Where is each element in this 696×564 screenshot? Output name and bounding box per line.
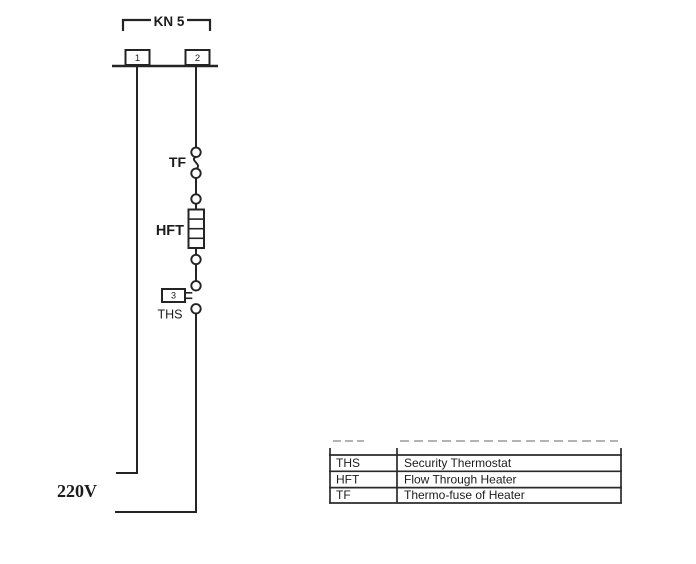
legend-table: THS Security Thermostat HFT Flow Through… [329,441,622,503]
wire-pin1-to-supply [116,66,137,473]
kn5-connector: KN 5 1 2 [112,14,218,66]
wiring-diagram: KN 5 1 2 TF [0,0,696,564]
hft-heater-symbol: HFT [156,194,204,264]
pin-1-label: 1 [135,53,140,64]
legend-description: Security Thermostat [404,456,512,470]
legend-row: THS Security Thermostat [336,456,512,470]
legend-description: Thermo-fuse of Heater [404,488,525,502]
ths-terminal-number: 3 [171,291,176,301]
legend-code: TF [336,488,351,502]
ths-terminal-bottom [191,304,200,313]
ths-thermostat-symbol: 3 THS [158,281,201,321]
legend-code: THS [336,456,360,470]
hft-label: HFT [156,223,184,239]
tf-terminal-top [191,148,200,157]
wire-pin2-to-supply [115,314,196,513]
ths-label: THS [158,308,183,322]
legend-row: HFT Flow Through Heater [336,472,517,486]
fuse-squiggle [194,157,198,169]
bracket-left-segment [123,20,151,31]
tf-thermofuse-symbol: TF [169,148,201,178]
wire-pin2-chain: TF HFT 3 [115,66,204,512]
tf-terminal-bottom [191,169,200,178]
tf-label: TF [169,154,187,170]
legend-row: TF Thermo-fuse of Heater [336,488,525,502]
ths-terminal-top [191,281,200,290]
hft-terminal-top [191,194,200,203]
hft-terminal-bottom [191,255,200,264]
pin-2-label: 2 [195,53,200,64]
schematic-page: KN 5 1 2 TF [0,0,696,564]
legend-code: HFT [336,472,360,486]
legend-description: Flow Through Heater [404,472,517,486]
bracket-right-segment [187,20,210,31]
connector-label: KN 5 [154,14,185,29]
supply-voltage-label: 220V [57,481,97,501]
